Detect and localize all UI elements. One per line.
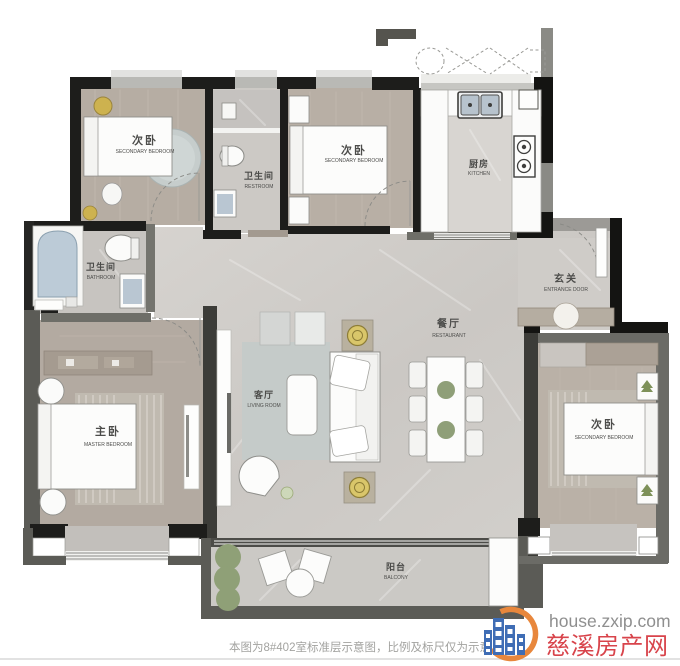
svg-text:本图为8#402室标准层示意图，比例及标尺仅为示意: 本图为8#402室标准层示意图，比例及标尺仅为示意 [229,640,491,654]
svg-text:MASTER BEDROOM: MASTER BEDROOM [84,442,132,448]
svg-text:ENTRANCE DOOR: ENTRANCE DOOR [544,287,588,293]
svg-text:LIVING ROOM: LIVING ROOM [247,403,280,409]
svg-text:厨房: 厨房 [469,158,489,169]
svg-text:BALCONY: BALCONY [384,575,409,581]
svg-text:次卧: 次卧 [132,133,158,147]
svg-text:KITCHEN: KITCHEN [468,171,490,177]
svg-text:house.zxip.com: house.zxip.com [549,611,671,631]
svg-text:卫生间: 卫生间 [244,170,274,181]
svg-text:RESTROOM: RESTROOM [245,184,274,190]
svg-text:次卧: 次卧 [341,143,367,157]
svg-text:SECONDARY BEDROOM: SECONDARY BEDROOM [325,158,384,164]
svg-text:RESTAURANT: RESTAURANT [432,333,466,339]
svg-text:SECONDARY BEDROOM: SECONDARY BEDROOM [116,149,175,155]
svg-text:玄关: 玄关 [554,272,578,285]
svg-text:次卧: 次卧 [591,417,617,431]
svg-text:BATHROOM: BATHROOM [87,275,116,281]
svg-text:客厅: 客厅 [253,389,274,400]
svg-text:主卧: 主卧 [95,424,121,438]
svg-text:SECONDARY BEDROOM: SECONDARY BEDROOM [575,435,634,441]
svg-text:餐厅: 餐厅 [436,317,461,330]
svg-text:慈溪房产网: 慈溪房产网 [546,633,669,660]
svg-text:阳台: 阳台 [386,561,406,572]
svg-text:卫生间: 卫生间 [86,261,116,272]
